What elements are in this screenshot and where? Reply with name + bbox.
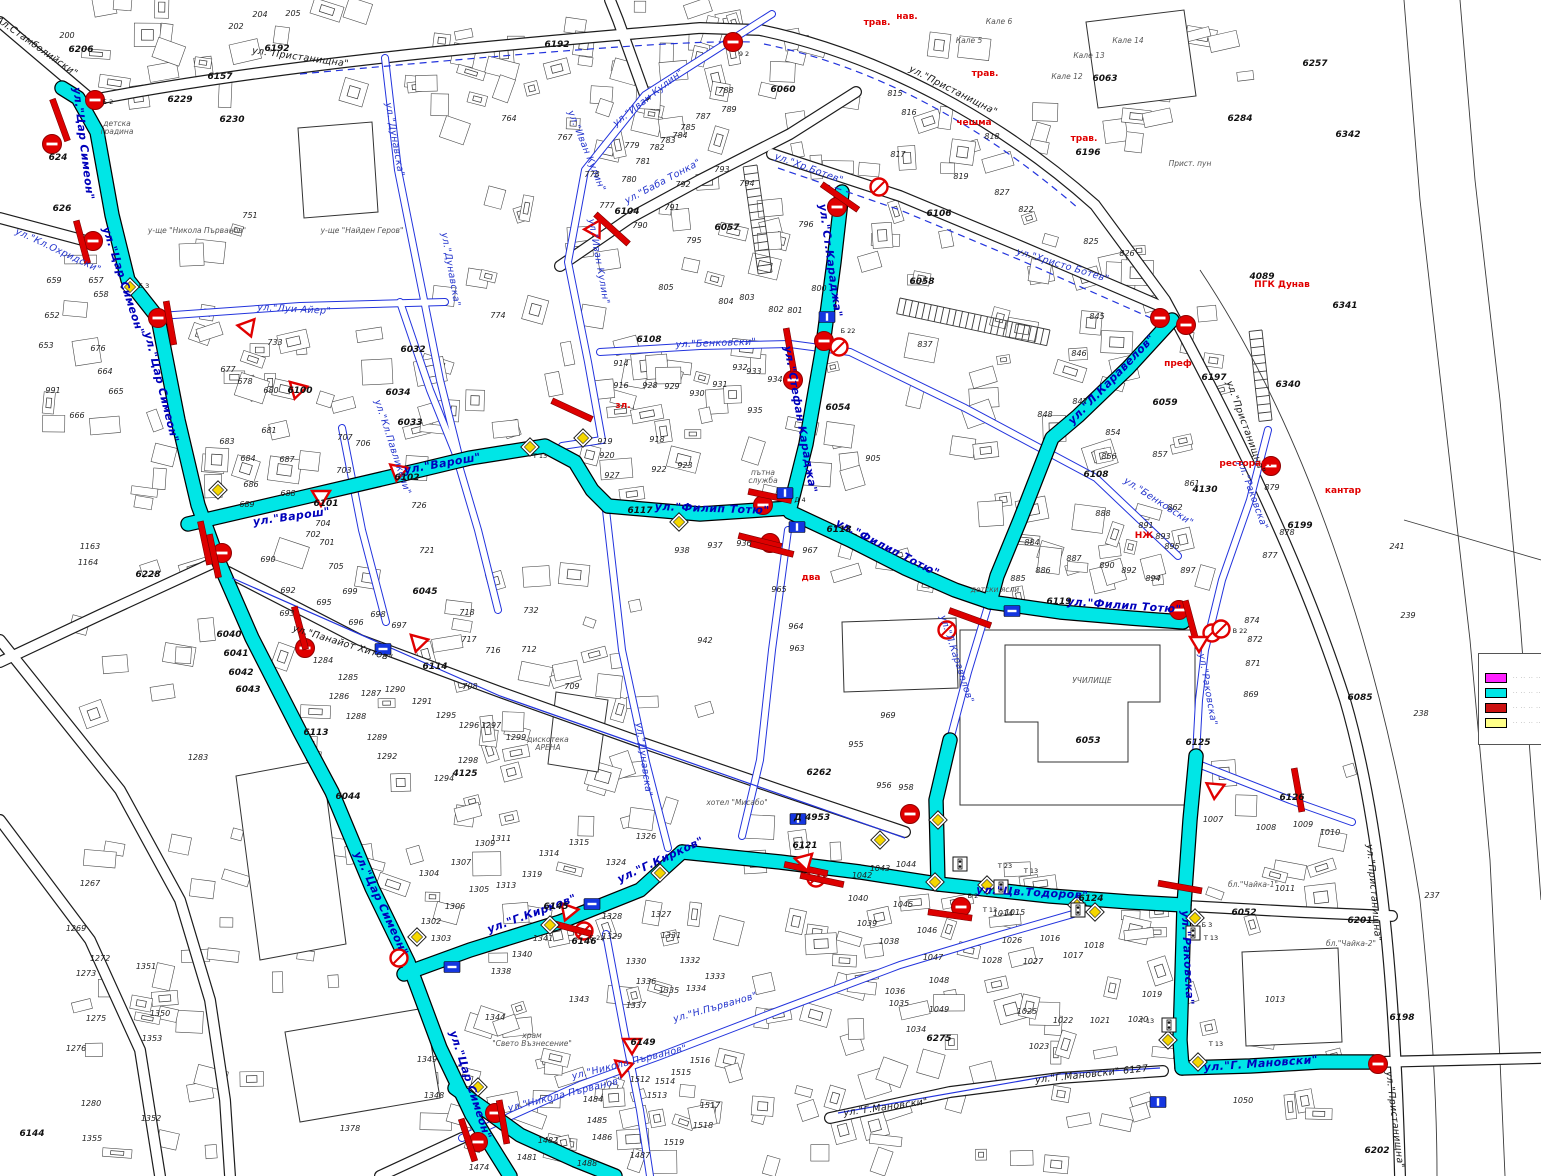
legend-swatch-magenta	[1485, 673, 1507, 683]
parcel-number-label: 1047	[923, 953, 944, 962]
parcel-number-label: 1267	[80, 879, 101, 888]
parcel-number-label: 204	[252, 10, 267, 19]
parcel-number-label: 862	[1167, 503, 1182, 512]
parcel-number-label: 779	[624, 141, 639, 150]
parcel-number-label: 1288	[346, 712, 366, 721]
map-canvas[interactable]: ул."Ал.Стамболийски"ул."Цар Симеон"ул."Ц…	[0, 0, 1541, 1176]
road-number-label: 6229	[167, 95, 192, 105]
road-number-label: 6057	[714, 223, 740, 233]
parcel-outline	[811, 1145, 829, 1161]
parcel-number-label: 665	[108, 387, 123, 396]
parcel-outline	[558, 563, 590, 587]
parcel-number-label: 1516	[690, 1056, 710, 1065]
kindergarten-building	[298, 122, 378, 218]
parcel-outline	[1100, 1114, 1133, 1132]
parcel-number-label: 687	[279, 455, 295, 464]
parcel-outline	[976, 1149, 987, 1160]
parcel-number-label: 837	[917, 340, 933, 349]
block-building-se	[1242, 948, 1342, 1046]
parcel-number-label: 788	[718, 86, 733, 95]
parcel-number-label: 1296	[459, 721, 479, 730]
parcel-outline	[500, 762, 522, 782]
parcel-number-label: 969	[880, 711, 895, 720]
parcel-number-label: 688	[280, 489, 295, 498]
red-annotation-label: трав.	[972, 69, 999, 79]
parcel-outline	[102, 1148, 132, 1159]
parcel-outline	[1307, 858, 1336, 877]
road-number-label: 6262	[806, 768, 831, 778]
parcel-number-label: 879	[1264, 483, 1279, 492]
mandatory-blue-sign-icon	[584, 899, 600, 910]
red-annotation-label: чешма	[956, 118, 991, 128]
legend-row: ·· ·· ·· ·· ··	[1485, 700, 1541, 715]
parcel-number-label: 1353	[142, 1034, 162, 1043]
parcel-number-label: 683	[219, 437, 234, 446]
parcel-number-label: 1331	[661, 931, 681, 940]
parcel-outline	[799, 1002, 831, 1027]
parcel-number-label: 695	[316, 598, 331, 607]
parcel-number-label: 878	[1279, 528, 1294, 537]
parcel-number-label: 1486	[592, 1133, 612, 1142]
poi-label: бл."Чайка-2"	[1326, 939, 1376, 948]
parcel-number-label: 205	[285, 9, 300, 18]
road-number-label: 6043	[235, 685, 260, 695]
parcel-number-label: 1306	[445, 902, 465, 911]
road-number-label: 6201	[1347, 916, 1372, 926]
parcel-outline	[679, 1084, 695, 1097]
poi-label: пътнаслужба	[748, 468, 778, 485]
sign-code-label: Т 13	[1139, 1017, 1154, 1025]
parcel-number-label: 1273	[76, 969, 96, 978]
parcel-number-label: 888	[1095, 509, 1110, 518]
parcel-number-label: 955	[848, 740, 863, 749]
parcel-number-label: 890	[1099, 561, 1114, 570]
parcel-number-label: 857	[1152, 450, 1168, 459]
street-todorov-east	[1188, 906, 1392, 916]
parcel-outline	[543, 58, 570, 79]
poi-label: Кале 14	[1112, 36, 1143, 45]
parcel-outline	[146, 409, 163, 432]
parcel-number-label: 239	[1400, 611, 1415, 620]
road-number-label: 6124	[1078, 894, 1103, 904]
parcel-outline	[1098, 543, 1121, 559]
parcel-number-label: 1344	[485, 1013, 505, 1022]
parcel-outline	[545, 371, 563, 396]
road-number-label: 6063	[1092, 74, 1117, 84]
parcel-outline	[102, 655, 128, 674]
parcel-number-label: 698	[370, 610, 385, 619]
road-number-label: 6206	[68, 45, 93, 55]
no-entry-sign-icon	[43, 135, 62, 154]
poi-label: детски ясли	[970, 585, 1020, 594]
parcel-number-label: 1487	[630, 1151, 651, 1160]
road-number-label: 6340	[1275, 380, 1300, 390]
parcel-number-label: 1514	[655, 1077, 675, 1086]
parcel-number-label: 789	[721, 105, 736, 114]
parcel-number-label: 918	[649, 435, 664, 444]
parcel-number-label: 1343	[569, 995, 589, 1004]
parcel-number-label: 848	[1037, 410, 1052, 419]
parcel-outline	[502, 745, 530, 762]
parcel-outline	[331, 396, 356, 413]
parcel-outline	[741, 437, 765, 466]
sign-code-label: Б 3	[139, 282, 150, 290]
parcel-outline	[556, 862, 583, 877]
parcel-number-label: 935	[747, 406, 762, 415]
parcel-outline	[43, 415, 65, 432]
parcel-outline	[1066, 1113, 1091, 1128]
parcel-outline	[938, 106, 953, 130]
road-number-label: 6052	[1231, 908, 1256, 918]
sign-code-label: Т 13	[532, 452, 547, 460]
road-number-label: 6033	[397, 418, 422, 428]
parcel-outline	[751, 1096, 774, 1117]
parcel-outline	[1152, 1046, 1175, 1058]
parcel-number-label: 938	[674, 546, 689, 555]
parcel-number-label: 1284	[313, 656, 333, 665]
parcel-outline	[694, 371, 710, 384]
poi-label: Кале 12	[1051, 72, 1082, 81]
parcel-number-label: 1275	[86, 1014, 106, 1023]
parcel-number-label: 1334	[686, 984, 706, 993]
parcel-number-label: 767	[557, 133, 573, 142]
road-number-label: 6058	[909, 277, 934, 287]
parcel-outline	[978, 500, 1004, 526]
road-number-label: 6060	[770, 85, 795, 95]
parcel-number-label: 708	[462, 682, 477, 691]
parcel-outline	[511, 1001, 526, 1015]
road-number-label: 6121	[792, 841, 817, 851]
parcel-outline	[950, 436, 976, 458]
poi-label: хотел "Мисабо"	[705, 798, 767, 807]
no-entry-sign-icon	[1369, 1055, 1388, 1074]
parcel-number-label: 1040	[848, 894, 868, 903]
parcel-number-label: 678	[237, 377, 252, 386]
parcel-outline	[151, 990, 178, 1006]
parcel-number-label: 1269	[66, 924, 86, 933]
parcel-number-label: 846	[1071, 349, 1086, 358]
parcel-number-label: 1351	[136, 962, 156, 971]
road-number-label: 6053	[1075, 736, 1100, 746]
road-number-label: 6045	[412, 587, 437, 597]
parcel-outline	[425, 892, 440, 901]
parcel-number-label: 1050	[1233, 1096, 1253, 1105]
no-stopping-sign-icon	[1213, 621, 1230, 638]
parcel-outline	[231, 828, 244, 841]
parcel-number-label: 1519	[664, 1138, 684, 1147]
label-layer: ул."Ал.Стамболийски"ул."Цар Симеон"ул."Ц…	[0, 2, 1441, 1172]
parcel-number-label: 1294	[434, 774, 454, 783]
parcel-outline	[151, 443, 177, 467]
road-number-label: 6341	[1332, 301, 1357, 311]
no-entry-sign-icon	[901, 805, 920, 824]
parcel-outline	[218, 81, 232, 107]
parcel-outline	[42, 392, 55, 414]
parcel-number-label: 1018	[1084, 941, 1104, 950]
traffic-signal-sign-icon	[953, 857, 967, 871]
parcel-number-label: 1482	[538, 1136, 558, 1145]
parcel-outline	[708, 126, 729, 155]
red-annotation-label: трав.	[864, 18, 891, 28]
parcel-number-label: 1019	[1142, 990, 1162, 999]
road-number-label: 6040	[216, 630, 241, 640]
parcel-outline	[649, 1109, 666, 1128]
parcel-number-label: 658	[93, 290, 108, 299]
parcel-number-label: 712	[521, 645, 536, 654]
parcel-outline	[522, 566, 550, 588]
parcel-number-label: 914	[613, 359, 628, 368]
parcel-number-label: 237	[1424, 891, 1440, 900]
parcel-number-label: 1280	[81, 1099, 101, 1108]
road-number-label: 626	[53, 204, 72, 214]
parcel-number-label: 1285	[338, 673, 358, 682]
parcel-outline	[519, 195, 534, 222]
red-annotation-label: ПГК Дунав	[1254, 280, 1310, 290]
parcel-outline	[1200, 1020, 1218, 1036]
parcel-number-label: 1043	[870, 864, 890, 873]
traffic-signal-sign-icon	[1162, 1018, 1176, 1032]
parcel-outline	[628, 807, 654, 830]
parcel-outline	[628, 599, 641, 612]
parcel-number-label: 1022	[1053, 1016, 1073, 1025]
parcel-number-label: 709	[564, 682, 579, 691]
parcel-number-label: 1286	[329, 692, 349, 701]
parcel-number-label: 827	[994, 188, 1010, 197]
parcel-number-label: 726	[411, 501, 426, 510]
sign-code-label: Б 3	[1202, 921, 1213, 929]
parcel-number-label: 1304	[419, 869, 439, 878]
parcel-number-label: 793	[714, 165, 729, 174]
parcel-number-label: 1289	[367, 733, 387, 742]
parcel-outline	[824, 421, 855, 448]
parcel-number-label: 825	[1083, 237, 1098, 246]
parcel-number-label: 1297	[481, 721, 502, 730]
parcel-number-label: 1337	[626, 1001, 647, 1010]
parcel-outline	[152, 37, 186, 66]
parcel-number-label: 805	[658, 283, 673, 292]
parcel-number-label: 963	[789, 644, 804, 653]
poi-label: у-ще "Найден Геров"	[320, 226, 404, 235]
parcel-outline	[1105, 521, 1124, 547]
parcel-outline	[522, 295, 549, 324]
parcel-number-label: 895	[1164, 542, 1179, 551]
parcel-number-label: 927	[604, 471, 620, 480]
parcel-number-label: 919	[597, 437, 612, 446]
parcel-outline	[996, 355, 1010, 365]
road-number-label: 6197	[1201, 373, 1227, 383]
red-annotation-label: нав.	[896, 12, 917, 22]
parcel-outline	[356, 327, 383, 343]
parcel-number-label: 707	[337, 433, 353, 442]
parcel-number-label: 1292	[377, 752, 397, 761]
poi-label: бл."Чайка-1"	[1228, 880, 1278, 889]
road-number-label: 6275	[926, 1034, 951, 1044]
parcel-outline	[524, 81, 540, 97]
parcel-number-label: 780	[621, 175, 636, 184]
road-number-label: 6118	[826, 525, 851, 535]
parcel-number-label: 791	[664, 203, 679, 212]
legend: · ··· ·· ·· ·· ·· ·· ·· ·· ·· ·· · ·· ··…	[1478, 653, 1541, 745]
parcel-number-label: 787	[695, 112, 711, 121]
parcel-outline	[770, 61, 796, 82]
church-parcel	[285, 1008, 440, 1122]
road-number-label: 6192	[264, 44, 289, 54]
parcel-number-label: 1276	[66, 1044, 86, 1053]
parcel-number-label: 928	[642, 381, 657, 390]
parcel-outline	[175, 647, 191, 664]
parcel-number-label: 1035	[889, 999, 909, 1008]
parcel-outline	[1195, 565, 1216, 591]
parcel-number-label: 796	[798, 220, 813, 229]
parcel-outline	[176, 1010, 204, 1033]
parcel-number-label: 1485	[587, 1116, 607, 1125]
parcel-number-label: 930	[689, 389, 704, 398]
parcel-number-label: 704	[315, 519, 330, 528]
parcel-number-label: 1045	[893, 900, 913, 909]
parcel-outline	[452, 618, 473, 632]
parcel-number-label: 861	[1184, 479, 1199, 488]
road-number-label: 6032	[400, 345, 425, 355]
parcel-outline	[454, 29, 473, 41]
parcel-number-label: 241	[1389, 542, 1404, 551]
parcel-number-label: 202	[228, 22, 243, 31]
parcel-number-label: 200	[59, 31, 74, 40]
parcel-number-label: 967	[802, 546, 818, 555]
parcel-number-label: 891	[1138, 521, 1153, 530]
street-name-label: ул."Дунавска"	[633, 721, 654, 798]
parcel-outline	[583, 617, 596, 629]
road-closure-bar-icon	[1291, 768, 1305, 812]
road-number-label: 6113	[303, 728, 328, 738]
parcel-number-label: 877	[1262, 551, 1278, 560]
parcel-number-label: 897	[1180, 566, 1196, 575]
parcel-outline	[1104, 977, 1121, 999]
parcel-number-label: 733	[267, 338, 282, 347]
parcel-outline	[484, 186, 506, 209]
parcel-outline	[152, 468, 166, 490]
road-number-label: 6144	[19, 1129, 44, 1139]
parcel-outline	[205, 1144, 217, 1158]
parcel-number-label: 1340	[512, 950, 532, 959]
parcel-outline	[1197, 305, 1217, 322]
parcel-number-label: 705	[328, 562, 343, 571]
parcel-outline	[797, 1099, 819, 1121]
road-number-label: 6198	[1389, 1013, 1414, 1023]
road-number-label: 6342	[1335, 130, 1360, 140]
parcel-number-label: 692	[280, 586, 295, 595]
cadastral-map[interactable]: ул."Ал.Стамболийски"ул."Цар Симеон"ул."Ц…	[0, 0, 1541, 1176]
parcel-number-label: 800	[811, 284, 826, 293]
parcel-number-label: 1341	[533, 934, 553, 943]
parcel-outline	[1125, 132, 1144, 153]
mandatory-blue-sign-icon	[444, 962, 460, 973]
sign-code-label: Т 23	[997, 862, 1012, 870]
parcel-number-label: 922	[651, 465, 666, 474]
street-6126	[1198, 764, 1352, 822]
parcel-number-label: 874	[1244, 616, 1259, 625]
parcel-number-label: 1299	[506, 733, 526, 742]
parcel-number-label: 1290	[385, 685, 405, 694]
parcel-number-label: 1327	[651, 910, 672, 919]
parcel-number-label: 716	[485, 646, 500, 655]
mandatory-blue-sign-icon	[777, 488, 793, 499]
parcel-number-label: 1036	[885, 987, 905, 996]
parcel-number-label: 934	[767, 375, 782, 384]
parcel-number-label: 693	[279, 609, 294, 618]
no-entry-sign-icon	[1177, 316, 1196, 335]
sign-code-label: Б 22	[590, 934, 605, 942]
road-number-label: 6108	[1083, 470, 1108, 480]
parcel-outline	[150, 684, 175, 701]
parcel-outline	[1343, 763, 1357, 777]
parcel-number-label: 1026	[1002, 936, 1022, 945]
parcel-outline	[71, 998, 92, 1012]
parcel-number-label: 1330	[626, 957, 646, 966]
parcel-number-label: 923	[677, 461, 692, 470]
traffic-signal-sign-icon	[1071, 903, 1085, 917]
parcel-number-label: 666	[69, 411, 84, 420]
parcel-number-label: 1025	[1017, 1007, 1037, 1016]
parcel-number-label: 795	[686, 236, 701, 245]
legend-row: ·· ·· ·· ·· ··	[1485, 670, 1541, 685]
parcel-number-label: 1481	[517, 1153, 537, 1162]
parcel-outline	[1043, 1155, 1069, 1174]
parcel-outline	[685, 430, 701, 439]
parcel-number-label: 1163	[80, 542, 100, 551]
sign-code-label: Д 4	[794, 496, 805, 504]
road-number-label: 6054	[825, 403, 850, 413]
parcel-number-label: 802	[768, 305, 783, 314]
red-annotation-label: трав.	[1071, 134, 1098, 144]
parcel-outline	[1067, 561, 1088, 572]
parcel-number-label: 684	[240, 454, 255, 463]
street-name-label: ул."Г.Мановски" 6127	[1034, 1063, 1149, 1086]
road-number-label: Д 4953	[793, 813, 830, 823]
parcel-outline	[83, 849, 116, 868]
parcel-number-label: 657	[88, 276, 104, 285]
sign-code-label: Б 22	[841, 327, 856, 335]
legend-row: ·· ·· ·· ·· ·	[1485, 715, 1541, 730]
parcel-outline	[795, 1086, 813, 1098]
parcel-outline	[168, 834, 191, 855]
parcel-number-label: 1046	[917, 926, 937, 935]
parcel-number-label: 1302	[421, 917, 441, 926]
parcel-outline	[416, 75, 438, 91]
parcel-number-label: 845	[1089, 312, 1104, 321]
parcel-number-label: 785	[680, 123, 695, 132]
sign-code-label: 9 2	[739, 50, 749, 58]
parcel-number-label: 764	[501, 114, 516, 123]
parcel-outline	[207, 948, 239, 963]
parcel-number-label: 1049	[929, 1005, 949, 1014]
parcel-outline	[378, 698, 395, 707]
parcel-outline	[465, 390, 484, 411]
sign-code-label: В 22	[1233, 627, 1248, 635]
poi-label: детскаградина	[101, 119, 134, 136]
road-number-label: 6257	[1302, 59, 1328, 69]
parcel-number-label: 854	[1105, 428, 1120, 437]
parcel-outline	[830, 842, 842, 861]
parcel-number-label: 816	[901, 108, 916, 117]
legend-label: ·· ·· ·· ·· ·	[1513, 690, 1541, 696]
parcel-outline	[826, 362, 839, 373]
parcel-number-label: 937	[707, 541, 723, 550]
parcel-number-label: 696	[348, 618, 363, 627]
parcel-number-label: 686	[243, 480, 258, 489]
parcel-number-label: 1314	[539, 849, 559, 858]
road-number-label: 6196	[1075, 148, 1100, 158]
parcel-outline	[489, 953, 508, 962]
